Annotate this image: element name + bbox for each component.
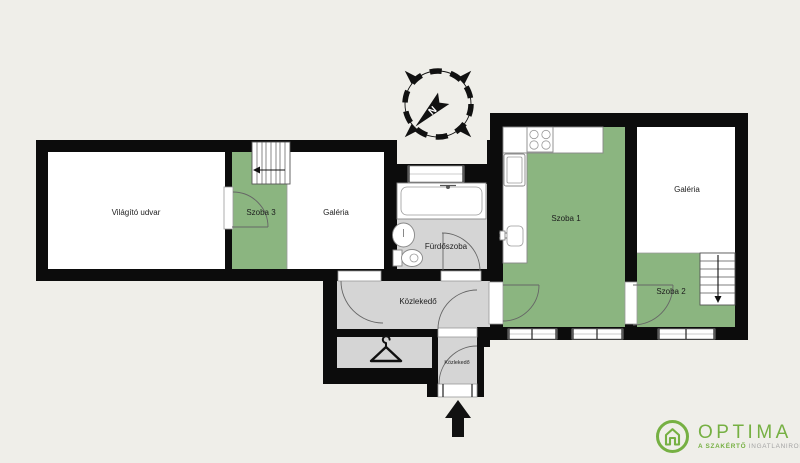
stairs-szoba3: [252, 142, 290, 184]
window-szoba1-a: [508, 329, 557, 339]
label-galeria-left: Galéria: [323, 208, 349, 217]
wall-right-block-right: [735, 113, 748, 340]
wall-right-block-left-upper: [490, 113, 503, 282]
window-szoba2: [658, 329, 715, 339]
wall-szoba1-galeria-divider: [625, 127, 637, 282]
label-kozlekedo-small: Közlekedő: [444, 360, 469, 366]
window-szoba1-b: [572, 329, 623, 339]
optima-house-icon: [654, 418, 691, 455]
wall-small-corridor-right: [477, 347, 484, 397]
optima-tagline: A SZAKÉRTŐ INGATLANIRODA: [698, 444, 800, 450]
wall-right-block-left-lower: [490, 324, 503, 340]
door-opening-szoba1: [489, 282, 503, 324]
label-szoba3: Szoba 3: [246, 208, 276, 217]
door-opening-szoba2: [625, 282, 637, 324]
label-szoba2: Szoba 2: [656, 287, 686, 296]
stairs-szoba2: [700, 253, 735, 305]
door-opening-szoba3: [224, 187, 233, 229]
label-furdoszoba: Fürdőszoba: [425, 242, 468, 251]
bathtub-icon: [397, 183, 486, 219]
wall-left-block-left: [36, 140, 48, 281]
washbasin-icon: [393, 223, 415, 247]
toilet-icon: [393, 250, 423, 267]
label-kozlekedo: Közlekedő: [399, 297, 437, 306]
optima-tagline-rest: INGATLANIRODA: [749, 443, 800, 450]
floor-plan-canvas: N Világító udvar Szoba 3 Galéria Fürdősz…: [0, 0, 800, 463]
wall-right-block-top: [490, 113, 748, 127]
entrance-door-opening: [438, 384, 477, 397]
wall-left-block-top: [36, 140, 396, 152]
wall-corridor-left: [323, 269, 337, 384]
optima-brand: OPTIMA: [698, 423, 800, 442]
floor-plan-drawing: N Világító udvar Szoba 3 Galéria Fürdősz…: [0, 0, 800, 463]
label-szoba1: Szoba 1: [551, 214, 581, 223]
label-galeria-right: Galéria: [674, 185, 700, 194]
door-opening-galeria-left: [338, 271, 381, 281]
wall-entry-left-stub: [427, 384, 438, 397]
wall-left-block-bottom: [36, 269, 500, 281]
fridge-icon: [504, 154, 525, 186]
optima-tagline-accent: A SZAKÉRTŐ: [698, 443, 746, 450]
door-opening-bathroom: [441, 271, 481, 281]
optima-logo-text: OPTIMA A SZAKÉRTŐ INGATLANIRODA: [698, 423, 800, 450]
optima-logo: OPTIMA A SZAKÉRTŐ INGATLANIRODA: [654, 418, 800, 455]
door-opening-small-corridor: [438, 328, 477, 337]
stove-icon: [527, 127, 553, 152]
wall-corner-block: [477, 327, 490, 347]
wall-closet-bottom: [323, 368, 438, 384]
label-vilagito-udvar: Világító udvar: [112, 208, 161, 217]
